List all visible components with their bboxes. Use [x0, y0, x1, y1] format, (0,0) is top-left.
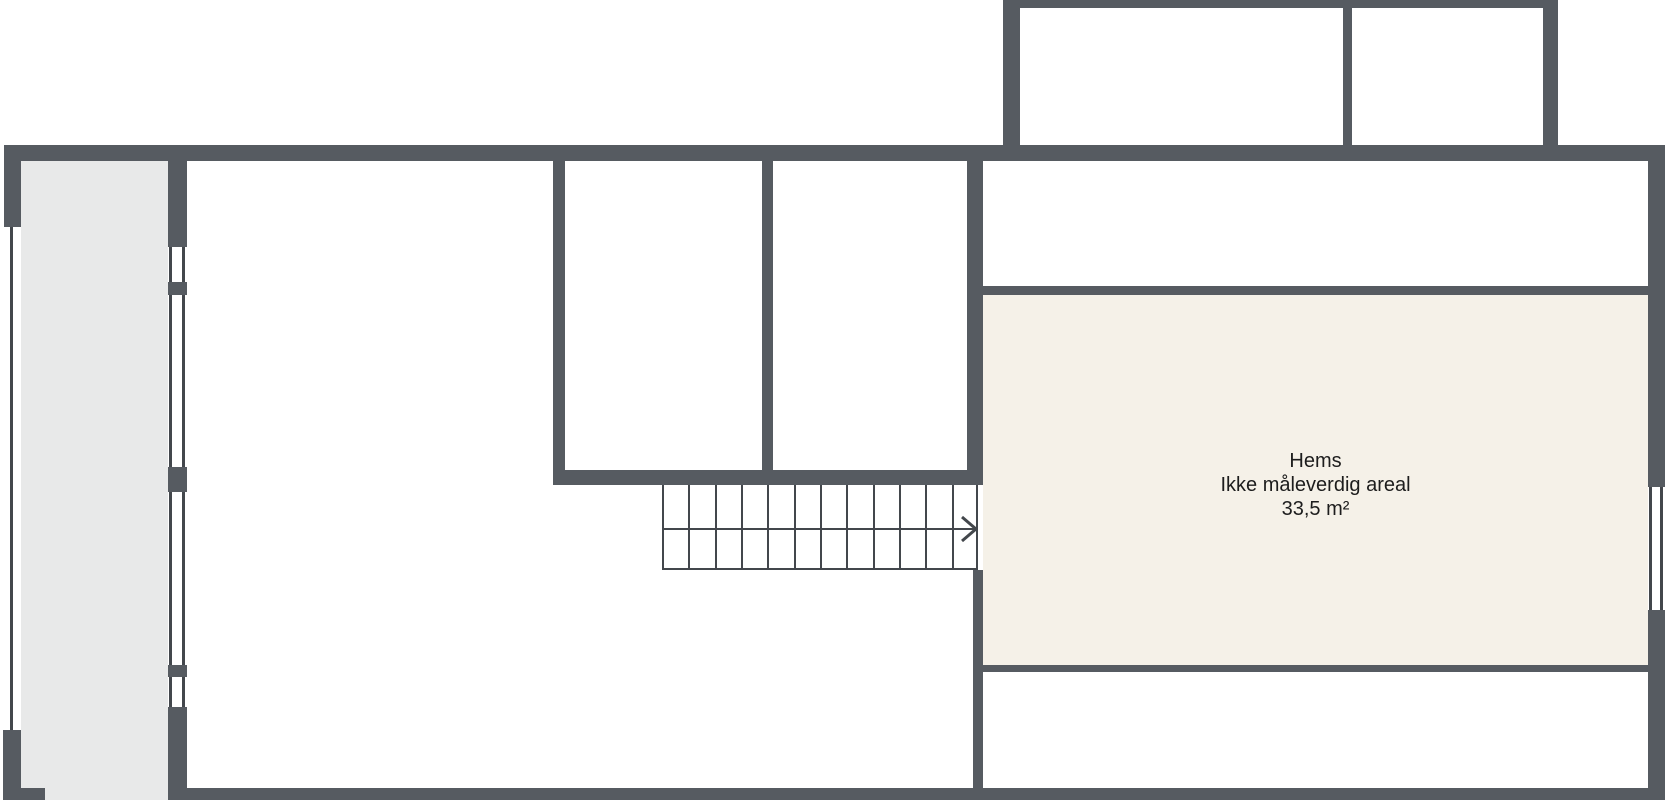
stair-direction-arrow-icon: [960, 515, 978, 543]
room-name: Hems: [983, 449, 1648, 473]
glass-wall-window-3: [169, 492, 185, 665]
room-divider-wall-2: [762, 145, 773, 470]
dormer-right-wall: [1543, 0, 1558, 152]
right-wall-window: [1649, 487, 1663, 610]
floorplan-canvas: Hems Ikke måleverdig areal 33,5 m²: [0, 0, 1670, 800]
room-area: 33,5 m²: [983, 497, 1648, 521]
stair-tread-line: [794, 485, 796, 570]
hems-room-label: Hems Ikke måleverdig areal 33,5 m²: [983, 449, 1648, 521]
glass-wall-window-1: [169, 247, 185, 282]
stair-tread-line: [820, 485, 822, 570]
stair-tread-line: [925, 485, 927, 570]
glass-wall-mullion-3: [168, 665, 187, 677]
glass-wall-top-post: [168, 145, 187, 247]
bottom-left-wall-stub: [3, 788, 45, 800]
stair-direction-line: [662, 528, 974, 530]
balcony-area: [21, 161, 168, 800]
hems-bottom-wall: [983, 665, 1648, 672]
stair-tread-line: [899, 485, 901, 570]
glass-wall-mullion-1: [168, 282, 187, 295]
glass-wall-bottom-post: [168, 707, 187, 800]
stair-tread-line: [846, 485, 848, 570]
stair-tread-line: [688, 485, 690, 570]
room-note: Ikke måleverdig areal: [983, 473, 1648, 497]
hems-left-wall-upper: [967, 145, 983, 485]
left-wall-upper: [4, 145, 21, 227]
hems-left-wall-lower: [973, 570, 983, 800]
top-wall: [4, 145, 1665, 161]
left-facade-window-line: [10, 227, 13, 730]
stair-tread-line: [873, 485, 875, 570]
glass-wall-window-4: [169, 677, 185, 707]
hems-top-wall: [983, 286, 1648, 295]
stair-tread-line: [952, 485, 954, 570]
dormer-divider-wall: [1343, 0, 1352, 146]
right-wall-upper: [1648, 145, 1665, 487]
glass-wall-mullion-2: [168, 467, 187, 492]
stair-tread-line: [741, 485, 743, 570]
middle-rooms-bottom-wall: [553, 470, 983, 485]
staircase: [662, 485, 978, 570]
stair-tread-line: [767, 485, 769, 570]
room-divider-wall-1: [553, 145, 565, 485]
bottom-wall: [168, 788, 1665, 800]
right-wall-lower: [1648, 610, 1665, 800]
dormer-left-wall: [1003, 0, 1020, 146]
glass-wall-window-2: [169, 295, 185, 467]
dormer-top-wall: [1003, 0, 1558, 8]
stair-tread-line: [715, 485, 717, 570]
